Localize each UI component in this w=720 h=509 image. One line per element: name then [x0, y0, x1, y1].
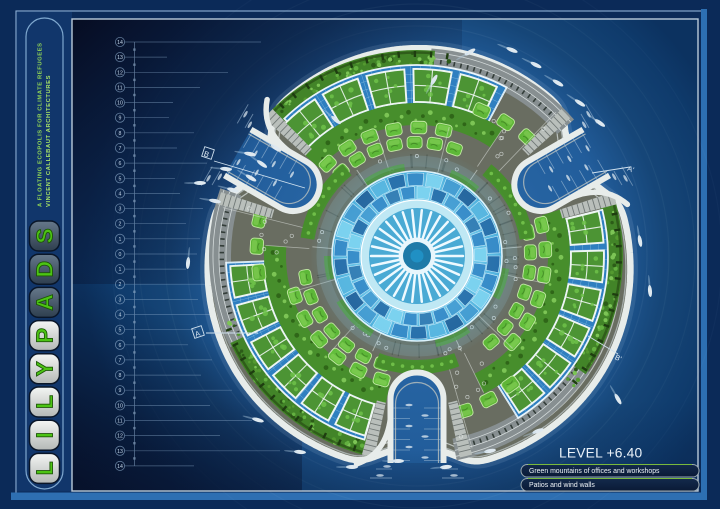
svg-text:10: 10 — [117, 101, 123, 107]
svg-text:9: 9 — [119, 116, 122, 122]
svg-text:A FLOATING ECOPOLIS FOR CLIMAT: A FLOATING ECOPOLIS FOR CLIMATE REFUGEES — [38, 42, 44, 207]
svg-text:1: 1 — [119, 267, 122, 273]
svg-text:11: 11 — [117, 85, 122, 91]
svg-text:12: 12 — [117, 434, 123, 440]
svg-text:8: 8 — [119, 373, 122, 379]
svg-text:5: 5 — [119, 328, 122, 334]
svg-text:L: L — [32, 461, 58, 475]
svg-text:7: 7 — [119, 358, 122, 364]
svg-text:5: 5 — [119, 176, 122, 182]
svg-text:7: 7 — [119, 146, 122, 152]
svg-text:0: 0 — [119, 252, 122, 258]
svg-text:6: 6 — [119, 343, 122, 349]
svg-text:4: 4 — [119, 313, 122, 319]
svg-text:13: 13 — [117, 449, 123, 455]
svg-text:2: 2 — [119, 222, 122, 228]
svg-text:2: 2 — [119, 282, 122, 288]
svg-text:Patios and wind walls: Patios and wind walls — [529, 482, 595, 489]
svg-text:10: 10 — [117, 403, 123, 409]
svg-text:3: 3 — [119, 297, 122, 303]
svg-text:12: 12 — [117, 70, 123, 76]
svg-text:P: P — [32, 328, 58, 343]
svg-text:D: D — [32, 261, 58, 278]
svg-text:8: 8 — [119, 131, 122, 137]
svg-text:13: 13 — [117, 55, 123, 61]
svg-text:11: 11 — [117, 419, 122, 425]
svg-text:3: 3 — [119, 207, 122, 213]
svg-text:6: 6 — [119, 161, 122, 167]
svg-text:14: 14 — [117, 464, 123, 470]
svg-text:1: 1 — [119, 237, 122, 243]
svg-text:A: A — [32, 294, 58, 311]
svg-text:4: 4 — [119, 191, 122, 197]
svg-text:I: I — [32, 432, 58, 438]
svg-text:S: S — [32, 228, 58, 243]
svg-text:L: L — [32, 395, 58, 409]
svg-text:9: 9 — [119, 388, 122, 394]
svg-text:LEVEL +6.40: LEVEL +6.40 — [559, 446, 643, 461]
svg-text:Y: Y — [32, 361, 58, 376]
svg-text:Green mountains of offices and: Green mountains of offices and workshops — [529, 468, 660, 475]
svg-text:VINCENT CALLEBAUT ARCHITECTURE: VINCENT CALLEBAUT ARCHITECTURES — [46, 75, 52, 207]
svg-text:14: 14 — [117, 40, 123, 46]
